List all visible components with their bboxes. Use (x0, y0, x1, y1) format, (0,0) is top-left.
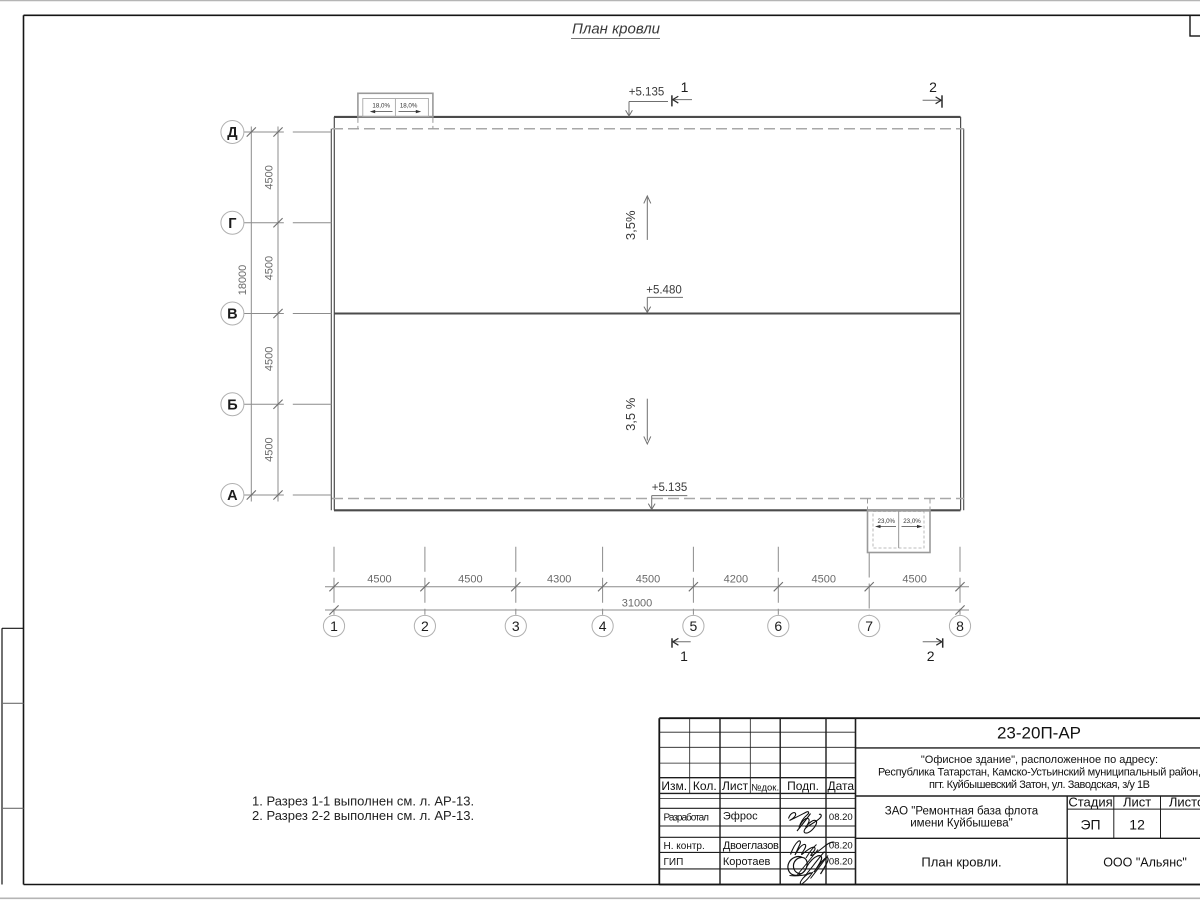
svg-text:1: 1 (681, 79, 689, 95)
svg-text:4500: 4500 (636, 573, 660, 585)
svg-text:Г: Г (228, 216, 236, 232)
svg-text:2: 2 (421, 618, 429, 634)
svg-text:Б: Б (227, 397, 237, 413)
svg-text:4200: 4200 (724, 573, 748, 585)
svg-text:Эфрос: Эфрос (723, 811, 758, 823)
svg-text:№док.: №док. (751, 782, 779, 793)
svg-text:Стадия: Стадия (1068, 794, 1112, 809)
svg-text:4500: 4500 (458, 573, 482, 585)
svg-text:Изм.: Изм. (661, 779, 687, 793)
svg-text:23,0%: 23,0% (903, 518, 921, 525)
svg-text:1: 1 (330, 618, 338, 634)
svg-text:ООО "Альянс": ООО "Альянс" (1103, 855, 1187, 869)
svg-text:Подп.: Подп. (787, 779, 819, 793)
svg-text:6: 6 (774, 618, 782, 634)
svg-text:+5.135: +5.135 (629, 87, 665, 99)
svg-text:"Офисное здание", расположенно: "Офисное здание", расположенное по адрес… (921, 754, 1158, 766)
svg-text:1. Разрез 1-1 выполнен см. л.: 1. Разрез 1-1 выполнен см. л. АР-13. (252, 794, 474, 809)
svg-text:31000: 31000 (622, 598, 653, 610)
svg-text:12: 12 (1129, 817, 1145, 833)
svg-text:08.20: 08.20 (829, 857, 853, 868)
svg-text:3,5%: 3,5% (623, 210, 638, 240)
svg-text:4300: 4300 (547, 573, 571, 585)
svg-text:План кровли: План кровли (572, 21, 661, 38)
svg-text:Республика Татарстан, Камско-У: Республика Татарстан, Камско-Устьинский … (878, 767, 1200, 779)
svg-text:5: 5 (690, 618, 698, 634)
svg-text:1: 1 (680, 648, 688, 664)
svg-text:План кровли.: План кровли. (921, 854, 1001, 869)
svg-text:3: 3 (512, 618, 520, 634)
svg-text:4: 4 (599, 618, 607, 634)
svg-text:2: 2 (929, 79, 937, 95)
svg-text:18000: 18000 (237, 265, 249, 296)
svg-text:ЗАО "Ремонтная база флота: ЗАО "Ремонтная база флота (885, 805, 1039, 817)
svg-text:Двоеглазов: Двоеглазов (723, 840, 779, 852)
svg-text:А: А (227, 488, 238, 504)
svg-text:08.20: 08.20 (829, 812, 853, 823)
svg-text:Дата: Дата (828, 779, 855, 793)
svg-text:4500: 4500 (367, 573, 391, 585)
svg-text:2: 2 (927, 648, 935, 664)
svg-text:4500: 4500 (263, 437, 275, 461)
svg-text:8: 8 (956, 618, 964, 634)
svg-text:2. Разрез 2-2 выполнен см. л.: 2. Разрез 2-2 выполнен см. л. АР-13. (252, 808, 474, 823)
svg-text:Листов: Листов (1169, 794, 1200, 809)
svg-text:Н. контр.: Н. контр. (664, 841, 705, 852)
svg-text:23-20П-АР: 23-20П-АР (997, 724, 1081, 743)
svg-text:3,5 %: 3,5 % (623, 397, 638, 431)
svg-text:4500: 4500 (263, 256, 275, 280)
svg-text:+5.480: +5.480 (646, 285, 682, 297)
svg-text:4500: 4500 (263, 347, 275, 371)
svg-text:имени Куйбышева": имени Куйбышева" (910, 817, 1013, 829)
svg-text:ГИП: ГИП (664, 857, 684, 868)
svg-text:Лист: Лист (722, 779, 749, 793)
svg-text:Разработал: Разработал (664, 812, 710, 824)
svg-text:18,0%: 18,0% (400, 103, 418, 110)
svg-text:Кол.: Кол. (693, 779, 717, 793)
svg-text:4500: 4500 (812, 573, 836, 585)
svg-text:23,0%: 23,0% (878, 518, 896, 525)
svg-text:В: В (227, 307, 237, 323)
svg-text:Лист: Лист (1123, 794, 1151, 809)
svg-text:4500: 4500 (902, 573, 926, 585)
svg-text:7: 7 (865, 618, 873, 634)
svg-text:пгт. Куйбышевский Затон, ул. З: пгт. Куйбышевский Затон, ул. Заводская, … (929, 779, 1150, 791)
svg-text:4500: 4500 (263, 165, 275, 189)
svg-text:Коротаев: Коротаев (723, 856, 771, 868)
svg-text:+5.135: +5.135 (652, 482, 688, 494)
svg-text:18,0%: 18,0% (372, 103, 390, 110)
svg-text:Д: Д (227, 125, 238, 141)
svg-text:ЭП: ЭП (1080, 817, 1100, 833)
